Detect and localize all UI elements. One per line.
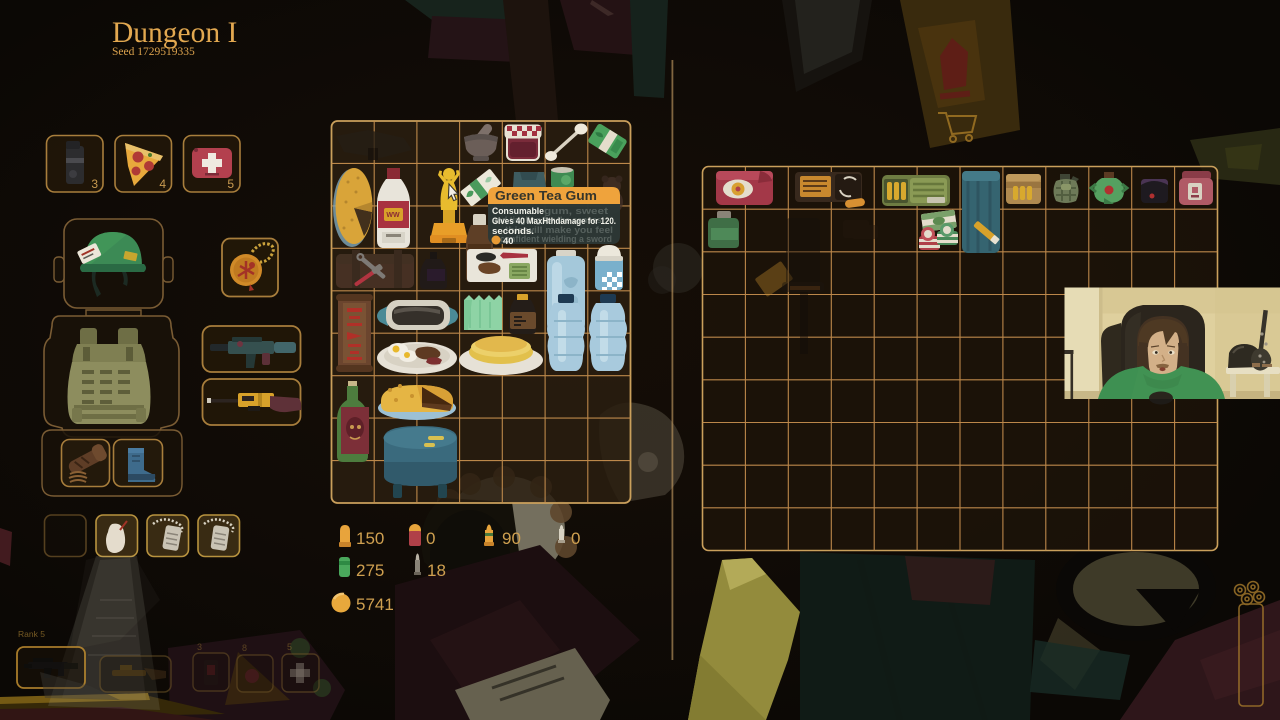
svg-text:90: 90 bbox=[502, 529, 521, 548]
svg-text:Consumable: Consumable bbox=[492, 206, 544, 216]
svg-text:seconds.: seconds. bbox=[492, 226, 534, 236]
svg-text:3: 3 bbox=[91, 177, 98, 191]
svg-text:Green Tea Gum: Green Tea Gum bbox=[495, 189, 597, 203]
svg-text:Gives 40 MaxHthdamage for 120.: Gives 40 MaxHthdamage for 120. bbox=[492, 216, 616, 226]
svg-text:5: 5 bbox=[227, 177, 234, 191]
svg-text:5: 5 bbox=[287, 642, 292, 652]
svg-text:8: 8 bbox=[242, 643, 247, 653]
svg-text:40: 40 bbox=[503, 236, 514, 247]
svg-text:5741: 5741 bbox=[356, 595, 394, 614]
svg-text:3: 3 bbox=[197, 642, 202, 652]
svg-text:Seed 1729519335: Seed 1729519335 bbox=[112, 46, 195, 58]
svg-text:4: 4 bbox=[159, 177, 166, 191]
svg-text:275: 275 bbox=[356, 561, 384, 580]
svg-text:0: 0 bbox=[571, 529, 580, 548]
svg-text:Dungeon I: Dungeon I bbox=[112, 17, 237, 49]
svg-text:150: 150 bbox=[356, 529, 384, 548]
svg-text:Rank 5: Rank 5 bbox=[18, 629, 45, 639]
svg-text:18: 18 bbox=[427, 561, 446, 580]
svg-text:WW: WW bbox=[386, 212, 400, 219]
svg-text:0: 0 bbox=[426, 529, 435, 548]
